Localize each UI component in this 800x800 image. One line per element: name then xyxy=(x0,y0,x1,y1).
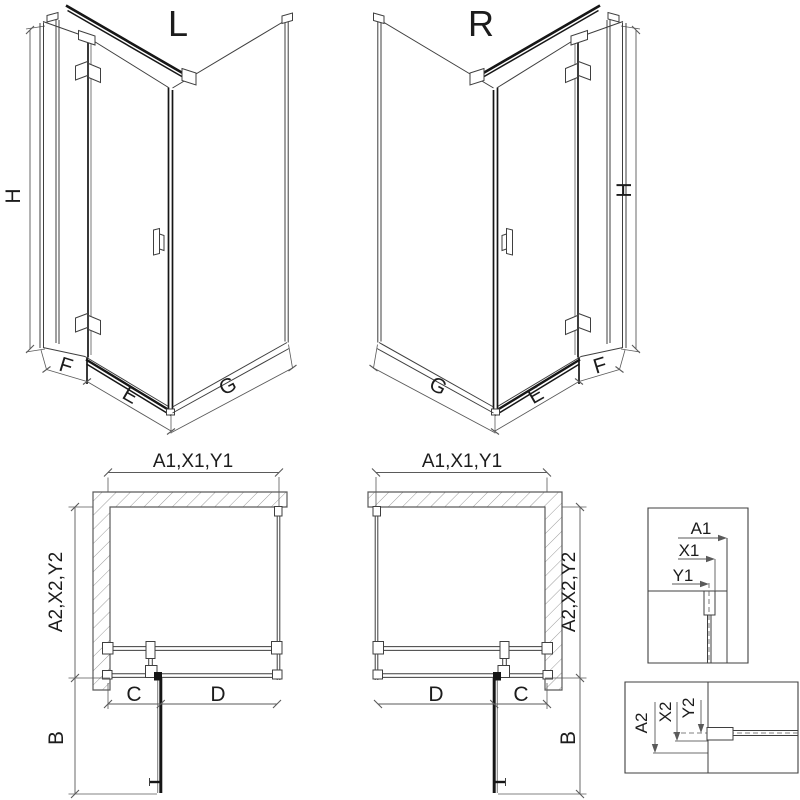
plan-left-view: A1,X1,Y1 A2,X2,Y2 C D B xyxy=(45,451,287,798)
wall-profile-section xyxy=(704,591,715,615)
fixed-dim-label: F xyxy=(591,353,610,379)
mid-width-label: X1 xyxy=(679,541,700,560)
door-segment-label: D xyxy=(428,683,443,706)
width-dim-label: A1,X1,Y1 xyxy=(153,451,233,472)
wall-profile-section xyxy=(707,728,733,741)
width-detail-view: A1 X1 Y1 xyxy=(648,508,748,663)
technical-drawing-page: L H F E G R H F E G A1,X1,Y1 A2,X2,Y2 C … xyxy=(0,0,800,800)
side-dim-label: G xyxy=(215,372,240,400)
height-dim-label: H xyxy=(613,182,636,197)
iso-left-view: L H F E G xyxy=(2,3,297,435)
detail-arrowheads xyxy=(652,724,704,753)
iso-right-view: R H F E G xyxy=(370,3,641,435)
plan-right-view: A1,X1,Y1 A2,X2,Y2 D C B xyxy=(368,451,587,798)
depth-detail-view: A2 X2 Y2 xyxy=(625,682,798,773)
door-segment-label: D xyxy=(210,683,225,706)
iso-left-label: L xyxy=(168,3,188,44)
reference-offset-lines xyxy=(653,741,708,753)
inner-width-label: Y1 xyxy=(673,566,694,585)
depth-dim-label: A2,X2,Y2 xyxy=(559,552,580,632)
detail-arrowheads xyxy=(700,535,727,587)
side-dim-label: G xyxy=(425,372,450,400)
fixed-segment-label: C xyxy=(126,683,141,706)
depth-dim-label: A2,X2,Y2 xyxy=(46,552,67,632)
plan-right-geometry xyxy=(368,469,587,799)
total-width-label: A1 xyxy=(691,519,712,538)
iso-right-label: R xyxy=(468,3,494,44)
fixed-dim-label: F xyxy=(56,353,75,379)
swing-dim-label: B xyxy=(45,731,68,745)
swing-dim-label: B xyxy=(557,731,580,745)
plan-left-geometry xyxy=(69,469,288,799)
total-depth-label: A2 xyxy=(632,713,651,734)
inner-depth-label: Y2 xyxy=(679,698,698,719)
height-dim-label: H xyxy=(2,188,25,203)
fixed-segment-label: C xyxy=(513,683,528,706)
width-dim-label: A1,X1,Y1 xyxy=(422,451,502,472)
shower-enclosure-technical-drawing: L H F E G R H F E G A1,X1,Y1 A2,X2,Y2 C … xyxy=(0,0,800,800)
mid-depth-label: X2 xyxy=(656,702,675,723)
